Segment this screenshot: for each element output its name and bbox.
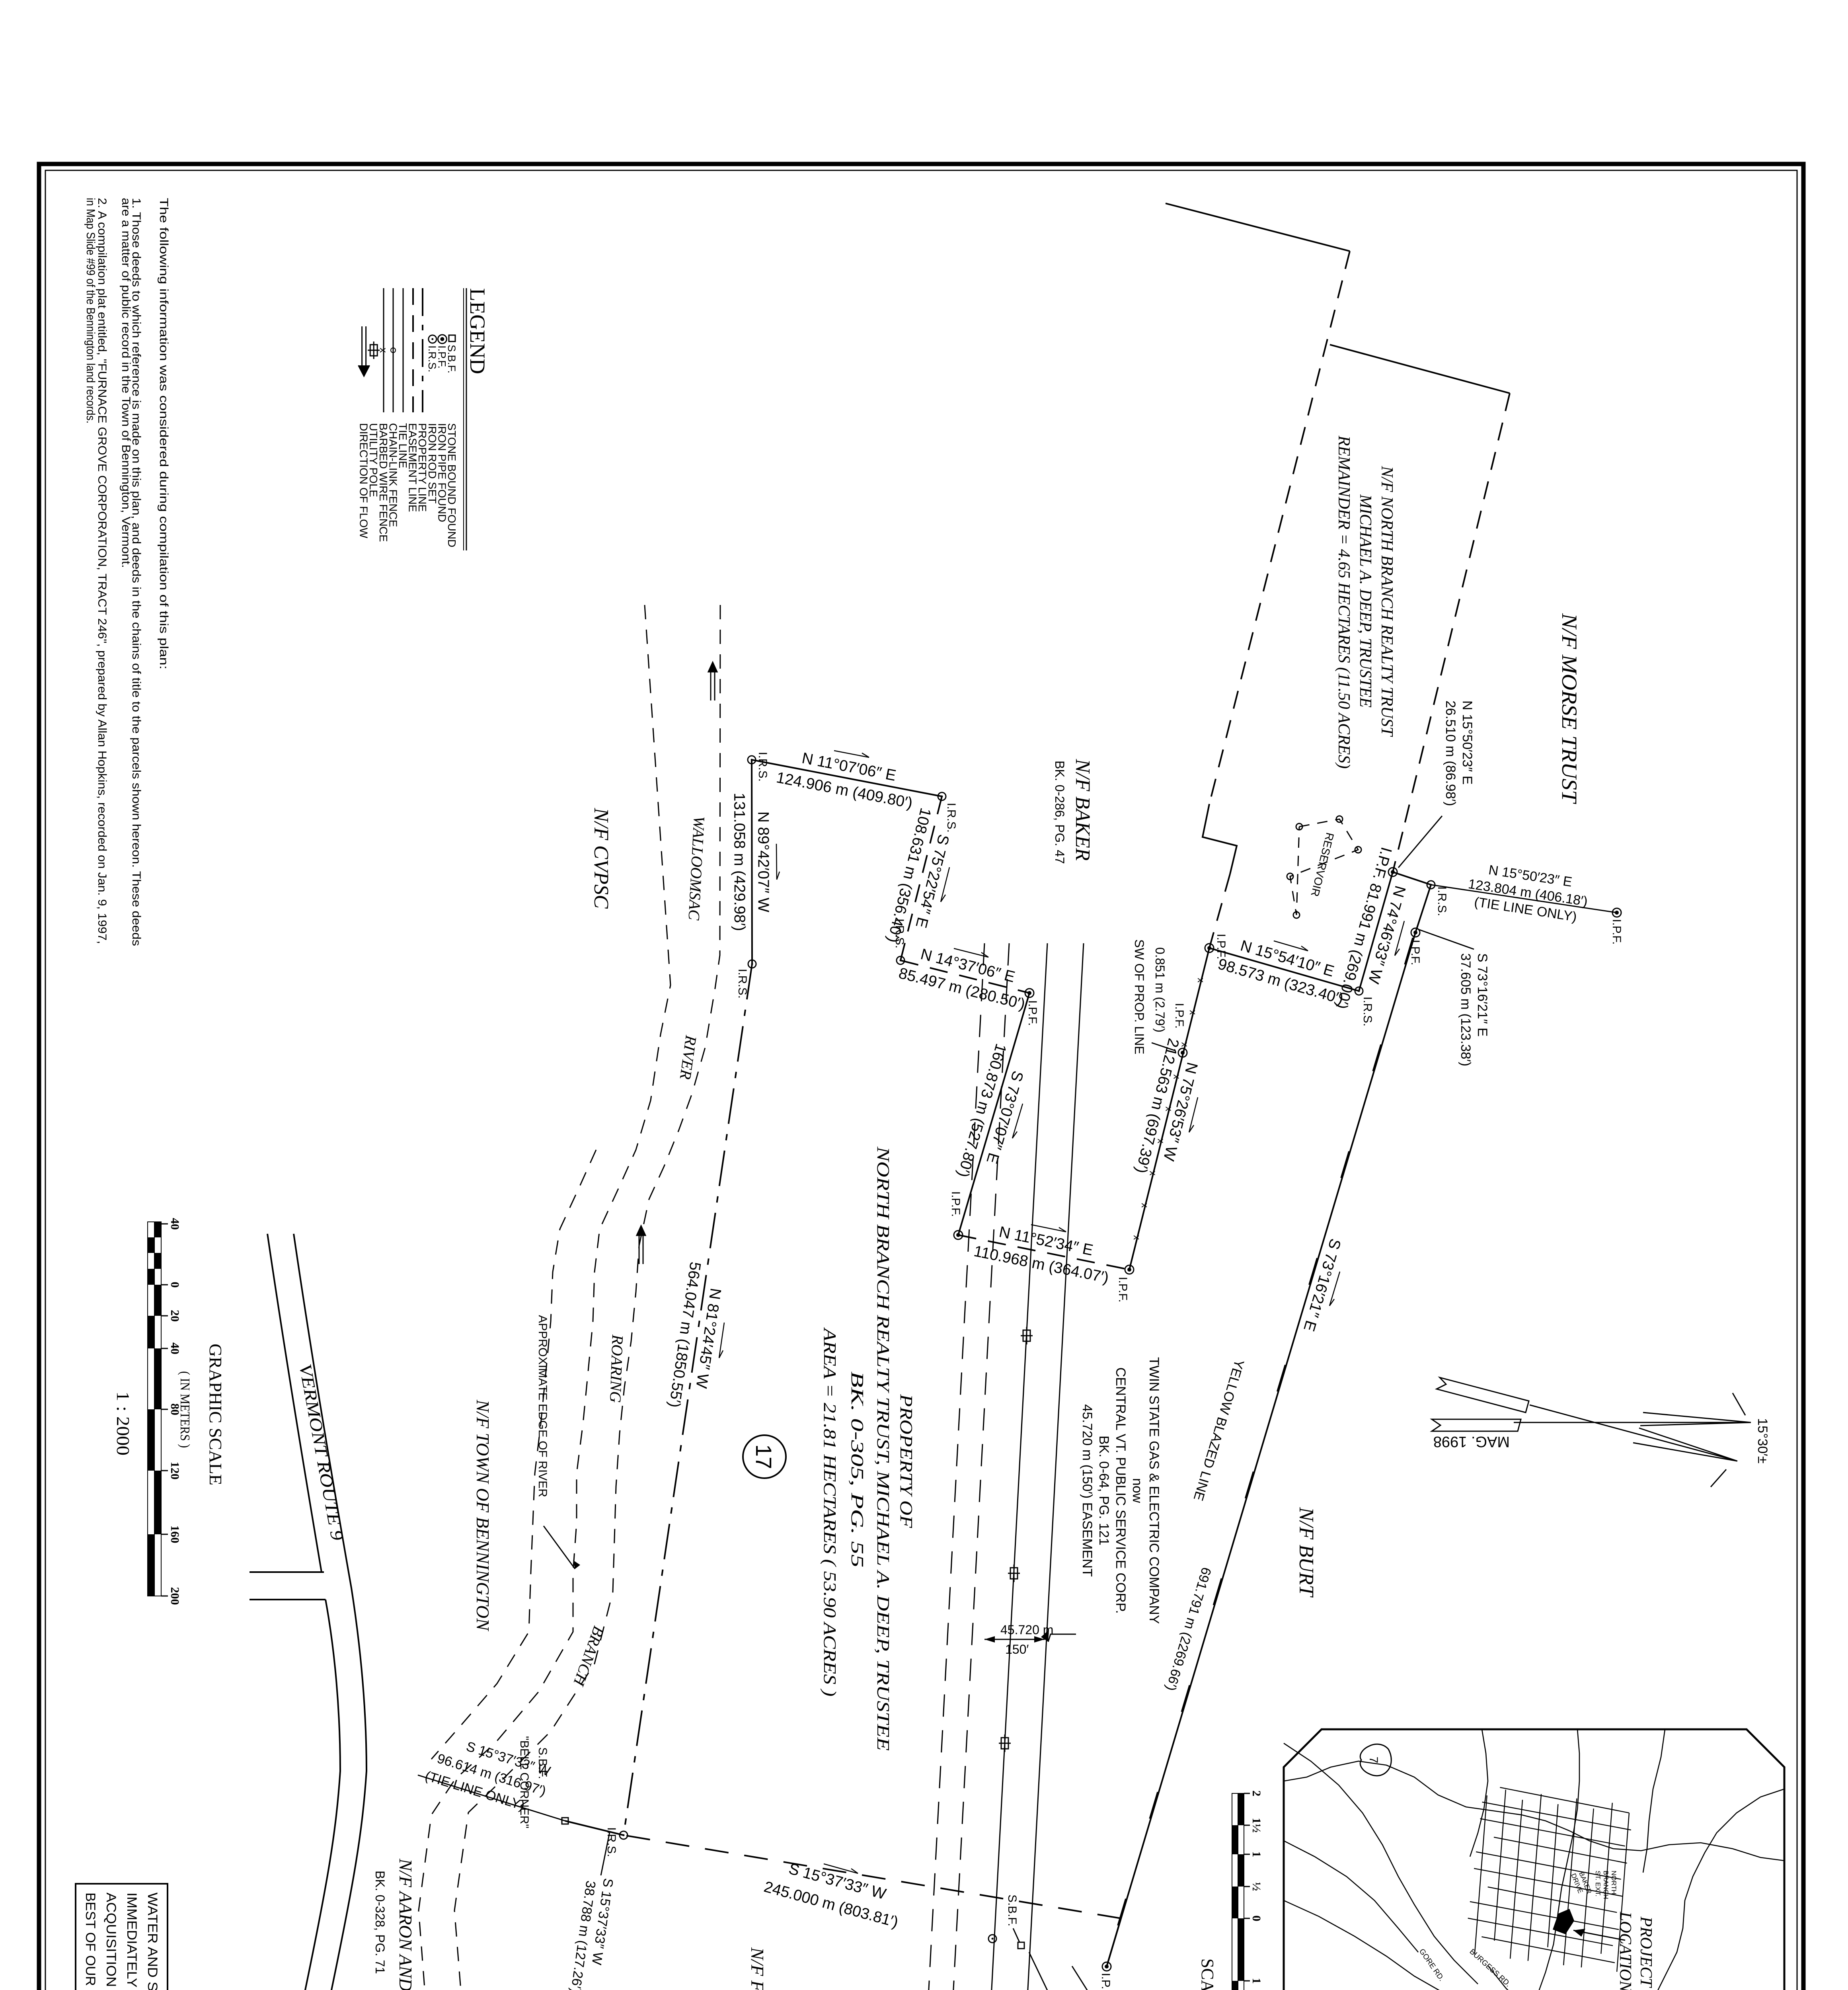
svg-text:160: 160 — [168, 1526, 181, 1543]
svg-text:26.510 m (86.98′): 26.510 m (86.98′) — [1443, 700, 1458, 806]
svg-text:17: 17 — [751, 1444, 776, 1469]
svg-text:MAG. 1998: MAG. 1998 — [1433, 1433, 1510, 1450]
svg-text:N/F MORSE TRUST: N/F MORSE TRUST — [1558, 613, 1581, 804]
svg-text:PROPERTY OF: PROPERTY OF — [897, 1394, 916, 1528]
svg-text:I.R.S.: I.R.S. — [756, 752, 769, 782]
svg-text:45.720 m: 45.720 m — [1000, 1623, 1053, 1637]
svg-text:0: 0 — [1250, 1916, 1263, 1922]
svg-text:N/F TOWN OF BENNINGTON: N/F TOWN OF BENNINGTON — [473, 1399, 493, 1631]
svg-text:I.P.F.: I.P.F. — [1116, 1277, 1129, 1302]
svg-text:GORE RD.: GORE RD. — [1417, 1947, 1446, 1983]
svg-text:1: 1 — [1250, 1851, 1263, 1857]
svg-text:APPROXIMATE EDGE OF RIVER: APPROXIMATE EDGE OF RIVER — [536, 1315, 549, 1497]
svg-text:N/F BURT: N/F BURT — [1295, 1507, 1318, 1598]
svg-text:I.P.F.: I.P.F. — [1026, 1000, 1039, 1026]
svg-text:1½: 1½ — [1250, 1818, 1263, 1833]
svg-text:REMAINDER = 4.65 HECTARES (11.: REMAINDER = 4.65 HECTARES (11.50 ACRES) — [1335, 435, 1353, 769]
svg-text:x: x — [1187, 1010, 1198, 1015]
svg-text:N/F FURNACE GROVE CORP.: N/F FURNACE GROVE CORP. — [747, 1947, 768, 1990]
svg-text:S.B.F.: S.B.F. — [1006, 1894, 1019, 1926]
svg-text:GRAPHIC SCALE: GRAPHIC SCALE — [206, 1344, 225, 1485]
svg-text:BK. 0-64, PG. 121: BK. 0-64, PG. 121 — [1096, 1436, 1111, 1545]
svg-text:VERMONT ROUTE 9: VERMONT ROUTE 9 — [295, 1362, 347, 1542]
svg-text:S 73°16′21″ E: S 73°16′21″ E — [1475, 953, 1490, 1037]
svg-text:now: now — [1130, 1478, 1145, 1503]
svg-text:ACQUISITION AREAS ARE SHOWN TO: ACQUISITION AREAS ARE SHOWN TO THE — [103, 1892, 119, 1990]
svg-text:LOCATION: LOCATION — [1616, 1911, 1634, 1990]
svg-text:I.R.S.: I.R.S. — [605, 1827, 618, 1857]
svg-text:x: x — [1195, 978, 1206, 983]
svg-text:20: 20 — [168, 1310, 181, 1322]
svg-text:200: 200 — [168, 1587, 181, 1605]
svg-text:40: 40 — [168, 1218, 181, 1230]
svg-text:BK. 0-328, PG. 71: BK. 0-328, PG. 71 — [373, 1871, 387, 1974]
svg-text:CENTRAL VT. PUBLIC SERVICE COR: CENTRAL VT. PUBLIC SERVICE CORP. — [1113, 1367, 1128, 1613]
svg-text:ST. EXT.: ST. EXT. — [1594, 1871, 1602, 1896]
svg-text:BRANCH: BRANCH — [1602, 1871, 1610, 1899]
svg-text:IMMEDIATELY ADJACENT TO THE PR: IMMEDIATELY ADJACENT TO THE PROPOSED — [124, 1892, 139, 1990]
svg-text:S.B.F.: S.B.F. — [536, 1747, 549, 1779]
svg-text:15°30′±: 15°30′± — [1755, 1418, 1770, 1463]
svg-text:37.605 m (123.38′): 37.605 m (123.38′) — [1458, 953, 1473, 1066]
svg-text:ROARING: ROARING — [606, 1334, 627, 1403]
svg-text:The following information was: The following information was considered… — [157, 198, 170, 669]
svg-text:AREA = 21.81 HECTARES ( 53.90: AREA = 21.81 HECTARES ( 53.90 ACRES ) — [820, 1327, 840, 1697]
svg-text:NORTH BRANCH REALTY TRUST, MIC: NORTH BRANCH REALTY TRUST, MICHAEL A. DE… — [873, 1146, 893, 1751]
svg-text:WALLOOMSAC: WALLOOMSAC — [685, 816, 708, 921]
svg-text:I.R.S.: I.R.S. — [1361, 997, 1374, 1026]
svg-text:I.P.F.: I.P.F. — [1610, 919, 1623, 944]
svg-text:I.R.S.: I.R.S. — [945, 803, 958, 833]
svg-text:S 73°16′21″ E: S 73°16′21″ E — [1300, 1237, 1344, 1333]
svg-text:PROJECT: PROJECT — [1637, 1916, 1655, 1988]
svg-text:N/F AARON AND SONS, INC.: N/F AARON AND SONS, INC. — [396, 1858, 416, 1990]
svg-text:BK. 0-286, PG. 47: BK. 0-286, PG. 47 — [1053, 761, 1067, 864]
svg-text:1: 1 — [1250, 1978, 1263, 1984]
svg-text:I.P.F.: I.P.F. — [1099, 1973, 1112, 1990]
svg-text:N/F NORTH BRANCH REALTY TRUST: N/F NORTH BRANCH REALTY TRUST — [1378, 466, 1396, 737]
svg-text:SW OF PROP. LINE: SW OF PROP. LINE — [1132, 939, 1146, 1054]
svg-text:WATER AND SEWER SYSTEMS WITHIN: WATER AND SEWER SYSTEMS WITHIN AND — [145, 1892, 160, 1990]
svg-text:1 : 2000: 1 : 2000 — [113, 1391, 133, 1455]
svg-text:MICHAEL A. DEEP, TRUSTEE: MICHAEL A. DEEP, TRUSTEE — [1356, 494, 1374, 708]
svg-text:I.R.S.: I.R.S. — [736, 969, 749, 999]
svg-text:LEGEND: LEGEND — [466, 288, 489, 374]
svg-text:"BELL CORNER": "BELL CORNER" — [518, 1736, 531, 1828]
svg-text:RIVER: RIVER — [676, 1034, 700, 1081]
svg-text:TWIN STATE GAS & ELECTRIC COMP: TWIN STATE GAS & ELECTRIC COMPANY — [1146, 1357, 1162, 1624]
svg-text:BRANCH: BRANCH — [570, 1624, 608, 1689]
svg-text:120: 120 — [168, 1462, 181, 1480]
svg-text:NORTH: NORTH — [1610, 1871, 1618, 1894]
svg-text:2: 2 — [1250, 1791, 1263, 1797]
svg-text:I.P.F.: I.P.F. — [949, 1191, 962, 1217]
svg-text:I.P.F.: I.P.F. — [1173, 1003, 1186, 1028]
svg-text:N/F BAKER: N/F BAKER — [1071, 759, 1094, 861]
svg-text:BK. 0-305, PG. 55: BK. 0-305, PG. 55 — [848, 1372, 867, 1568]
svg-text:N 89°42′07″ W: N 89°42′07″ W — [754, 812, 772, 913]
svg-text:7: 7 — [1367, 1757, 1380, 1764]
svg-text:40: 40 — [168, 1342, 181, 1354]
svg-text:DIRECTION OF FLOW: DIRECTION OF FLOW — [358, 423, 370, 538]
svg-text:2. A compilation plat entitled: 2. A compilation plat entitled, "FURNACE… — [96, 198, 109, 944]
svg-text:691.791 m (2269.66′): 691.791 m (2269.66′) — [1163, 1565, 1214, 1692]
svg-text:BEST OF OUR KNOWLEDGE.: BEST OF OUR KNOWLEDGE. — [83, 1892, 98, 1990]
svg-text:0.851 m (2.79′): 0.851 m (2.79′) — [1153, 947, 1167, 1032]
svg-text:YELLOW BLAZED LINE: YELLOW BLAZED LINE — [1191, 1358, 1247, 1502]
svg-text:in Map Slide #99 of the Bennin: in Map Slide #99 of the Bennington land … — [84, 198, 97, 423]
svg-text:0: 0 — [168, 1282, 181, 1288]
svg-text:150′: 150′ — [1005, 1642, 1029, 1656]
svg-text:80: 80 — [168, 1403, 181, 1415]
svg-text:I.R.S.: I.R.S. — [426, 345, 438, 373]
svg-text:BURGESS RD.: BURGESS RD. — [1468, 1947, 1512, 1988]
svg-text:131.058 m (429.98′): 131.058 m (429.98′) — [731, 793, 748, 931]
svg-text:RESERVOIR: RESERVOIR — [1308, 831, 1336, 898]
svg-text:SCALE IN KILOMETERS: SCALE IN KILOMETERS — [1198, 1959, 1217, 1990]
svg-text:are a matter of public record: are a matter of public record in the Tow… — [119, 198, 133, 568]
svg-text:I.R.S.: I.R.S. — [1435, 886, 1448, 916]
svg-text:N 15°50′23″ E: N 15°50′23″ E — [1460, 700, 1475, 785]
svg-text:x: x — [1139, 1203, 1150, 1208]
svg-text:x: x — [1131, 1235, 1142, 1240]
svg-text:N/F CVPSC: N/F CVPSC — [590, 808, 612, 909]
svg-text:½: ½ — [1250, 1882, 1263, 1891]
svg-text:I.P.F.: I.P.F. — [1409, 940, 1422, 965]
svg-text:45.720 m (150′) EASEMENT: 45.720 m (150′) EASEMENT — [1080, 1404, 1095, 1576]
